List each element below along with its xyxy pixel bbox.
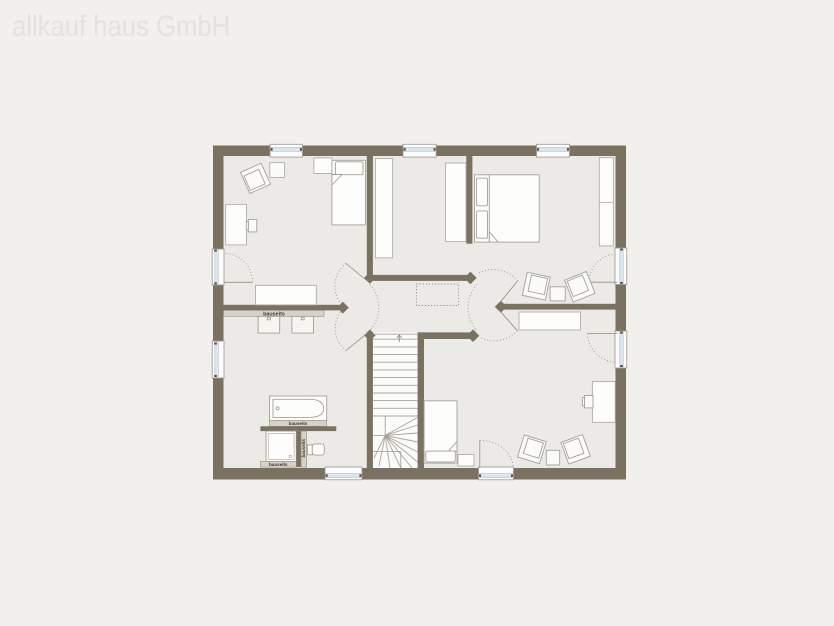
svg-text:bauseits: bauseits: [269, 462, 288, 467]
svg-text:bauseits: bauseits: [289, 421, 308, 426]
svg-text:bauseits: bauseits: [301, 438, 306, 457]
